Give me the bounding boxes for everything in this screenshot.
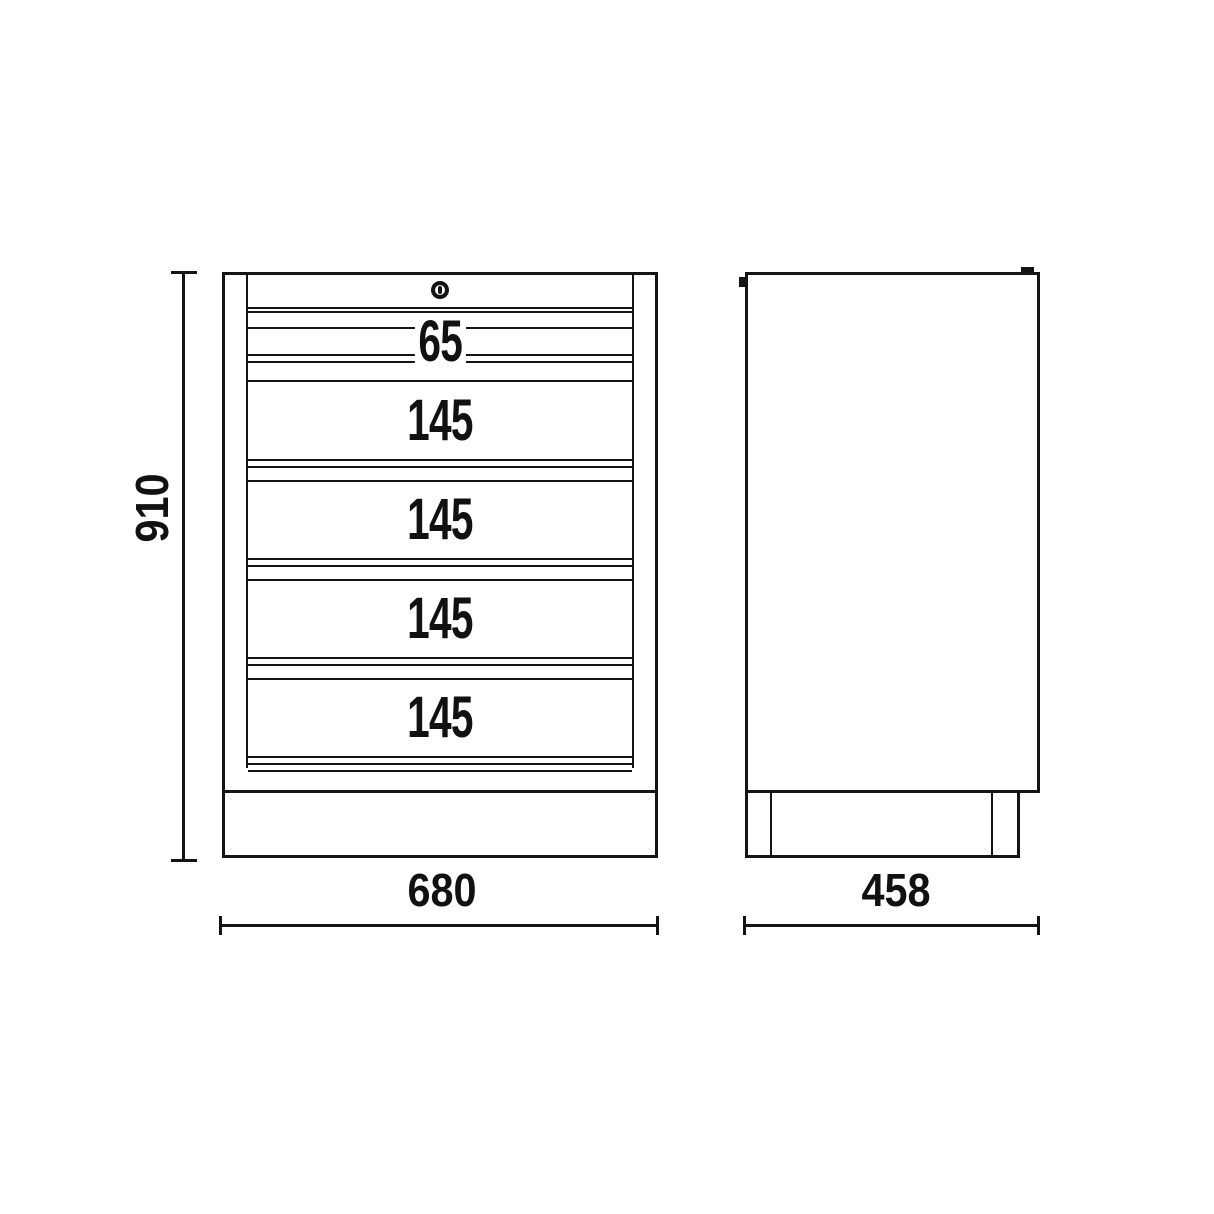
front-base-plinth	[222, 790, 658, 858]
drawer-face-4: 145	[248, 581, 632, 657]
drawer-height-label: 65	[415, 313, 466, 371]
dimension-tick	[743, 916, 746, 935]
side-body-outline	[745, 272, 1040, 793]
width-dimension-line	[221, 924, 658, 927]
height-dimension-line	[182, 272, 185, 862]
side-top-right-tab	[1021, 267, 1034, 273]
rail-line	[248, 770, 632, 772]
drawer-face-1: 65	[248, 329, 632, 354]
drawer-face-5: 145	[248, 680, 632, 756]
width-dimension-label: 680	[397, 868, 487, 912]
side-base-inner-line	[770, 793, 772, 855]
side-base-plinth	[745, 790, 1020, 858]
dimension-tick	[171, 859, 197, 862]
front-right-post-line	[632, 275, 634, 768]
rail-line	[248, 466, 632, 468]
dimension-tick	[219, 916, 222, 935]
side-base-inner-line	[991, 793, 993, 855]
side-top-left-tab	[739, 277, 747, 287]
depth-dimension-label: 458	[851, 868, 941, 912]
dimension-tick	[1037, 916, 1040, 935]
drawer-face-3: 145	[248, 482, 632, 558]
drawer-height-label: 145	[404, 491, 477, 549]
rail-line	[248, 565, 632, 567]
dimension-tick	[656, 916, 659, 935]
drawer-face-2: 145	[248, 382, 632, 459]
rail-line	[248, 657, 632, 659]
rail-line	[248, 664, 632, 666]
keyhole-icon	[431, 281, 449, 299]
drawer-height-label: 145	[404, 392, 477, 450]
drawer-height-label: 145	[404, 689, 477, 747]
keyhole-slot	[438, 286, 442, 294]
dimension-tick	[171, 271, 197, 274]
drawer-height-label: 145	[404, 590, 477, 648]
rail-line	[248, 756, 632, 758]
height-dimension-label: 910	[129, 454, 175, 562]
rail-line	[248, 459, 632, 461]
technical-drawing-canvas: 65 145 145 145 145 910 680	[0, 0, 1214, 1214]
depth-dimension-line	[745, 924, 1040, 927]
rail-line	[248, 558, 632, 560]
rail-line	[248, 763, 632, 765]
